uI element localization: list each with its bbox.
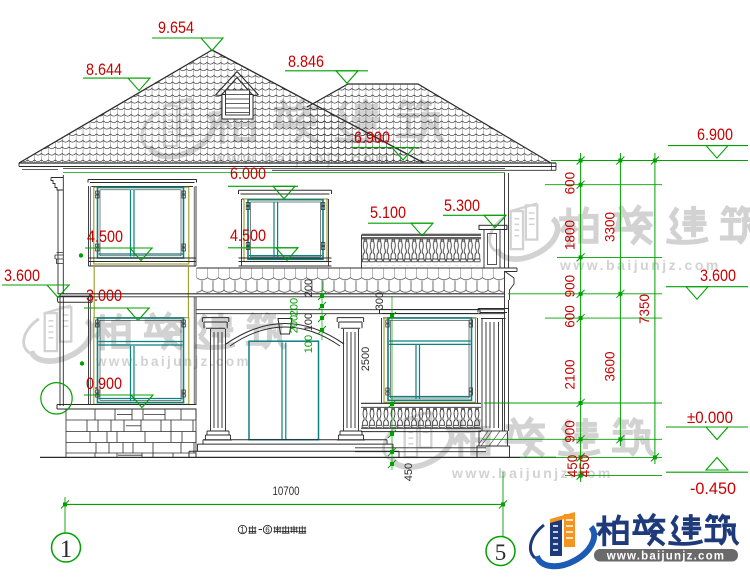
svg-text:4.500: 4.500: [87, 227, 123, 246]
svg-text:5: 5: [495, 540, 507, 565]
svg-text:600: 600: [563, 305, 578, 328]
svg-text:4.500: 4.500: [230, 226, 266, 245]
svg-text:www.baijunjz.com: www.baijunjz.com: [606, 551, 725, 563]
svg-text:-0.450: -0.450: [690, 479, 736, 498]
svg-text:3.600: 3.600: [700, 266, 736, 285]
svg-text:10700: 10700: [273, 486, 300, 498]
svg-text:3300: 3300: [603, 212, 618, 242]
svg-text:1: 1: [240, 526, 245, 535]
svg-text:600: 600: [563, 172, 578, 195]
svg-text:1800: 1800: [563, 220, 578, 250]
svg-text:5.300: 5.300: [444, 196, 480, 215]
svg-text:1: 1: [60, 536, 73, 563]
svg-text:±0.000: ±0.000: [687, 408, 733, 427]
svg-text:6.900: 6.900: [697, 125, 733, 144]
svg-text:100: 100: [303, 335, 315, 353]
svg-text:200: 200: [289, 315, 301, 333]
svg-text:2500: 2500: [360, 347, 372, 371]
svg-text:100: 100: [303, 313, 315, 331]
svg-text:3600: 3600: [603, 351, 618, 381]
svg-text:3.600: 3.600: [4, 266, 40, 285]
svg-text:900: 900: [563, 420, 578, 443]
svg-text:6.900: 6.900: [354, 128, 390, 147]
svg-text:9.654: 9.654: [158, 18, 194, 37]
svg-text:900: 900: [563, 275, 578, 298]
svg-text:0.900: 0.900: [86, 374, 122, 393]
svg-text:6.000: 6.000: [230, 164, 266, 183]
svg-text:5.100: 5.100: [370, 203, 406, 222]
svg-text:6: 6: [265, 526, 270, 535]
svg-text:300: 300: [374, 292, 386, 310]
svg-text:2100: 2100: [563, 359, 578, 389]
svg-text:3.000: 3.000: [86, 286, 122, 305]
svg-text:7350: 7350: [637, 294, 652, 324]
svg-text:450: 450: [403, 463, 415, 481]
svg-text:www.baijunjz.com: www.baijunjz.com: [559, 257, 721, 273]
svg-text:200: 200: [289, 298, 301, 316]
svg-text:200: 200: [303, 279, 315, 297]
svg-text:450: 450: [577, 455, 592, 478]
svg-text:www.baijunjz.com: www.baijunjz.com: [95, 354, 251, 369]
svg-text:8.644: 8.644: [86, 60, 122, 79]
svg-text:8.846: 8.846: [288, 52, 324, 71]
